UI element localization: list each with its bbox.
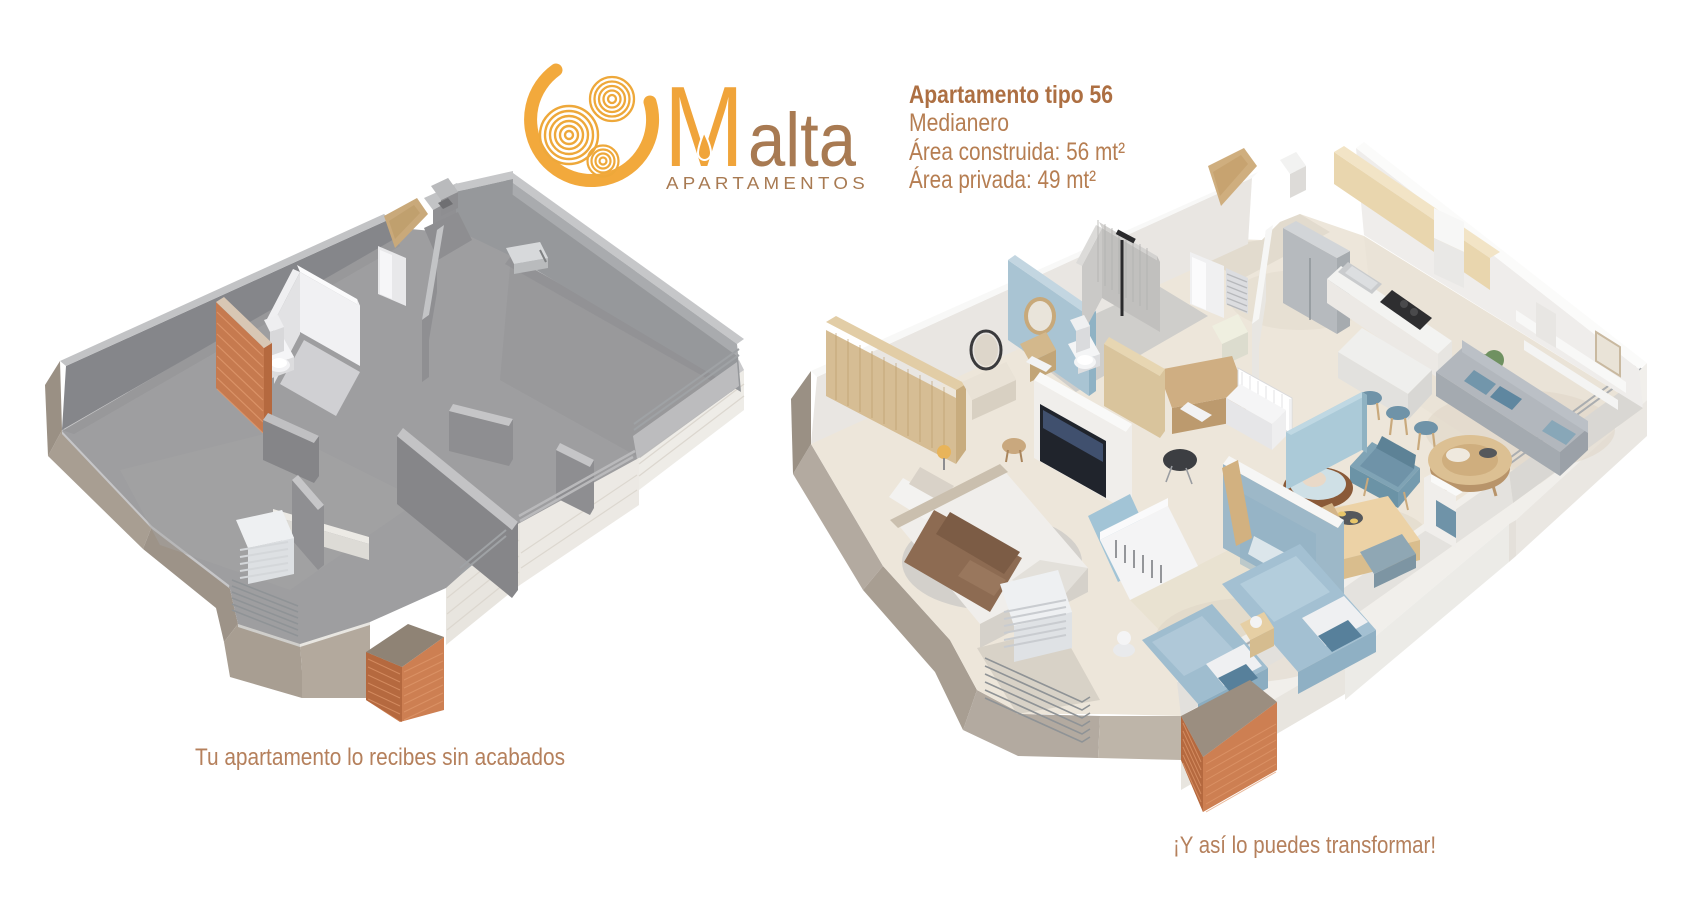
svg-text:alta: alta — [748, 98, 857, 183]
svg-text:M: M — [664, 64, 744, 191]
svg-text:Apartamento tipo 56: Apartamento tipo 56 — [909, 81, 1113, 109]
svg-text:¡Y así lo puedes transformar!: ¡Y así lo puedes transformar! — [1173, 832, 1436, 859]
svg-text:Área privada: 49 mt²: Área privada: 49 mt² — [909, 165, 1096, 194]
svg-text:APARTAMENTOS: APARTAMENTOS — [666, 173, 869, 193]
svg-text:Tu apartamento lo recibes sin: Tu apartamento lo recibes sin acabados — [195, 744, 565, 771]
svg-text:Medianero: Medianero — [909, 109, 1009, 137]
svg-text:Área construida: 56 mt²: Área construida: 56 mt² — [909, 137, 1125, 166]
